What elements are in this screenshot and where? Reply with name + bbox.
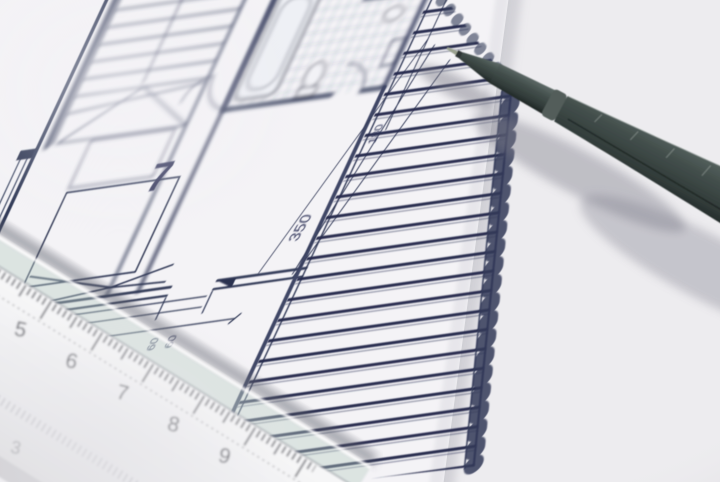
photo-canvas: 7 580 350 180 60 60 90 4 5 6 7 8 9 3 xyxy=(0,0,720,482)
photo-scene: 7 580 350 180 60 60 90 4 5 6 7 8 9 3 xyxy=(0,0,720,482)
